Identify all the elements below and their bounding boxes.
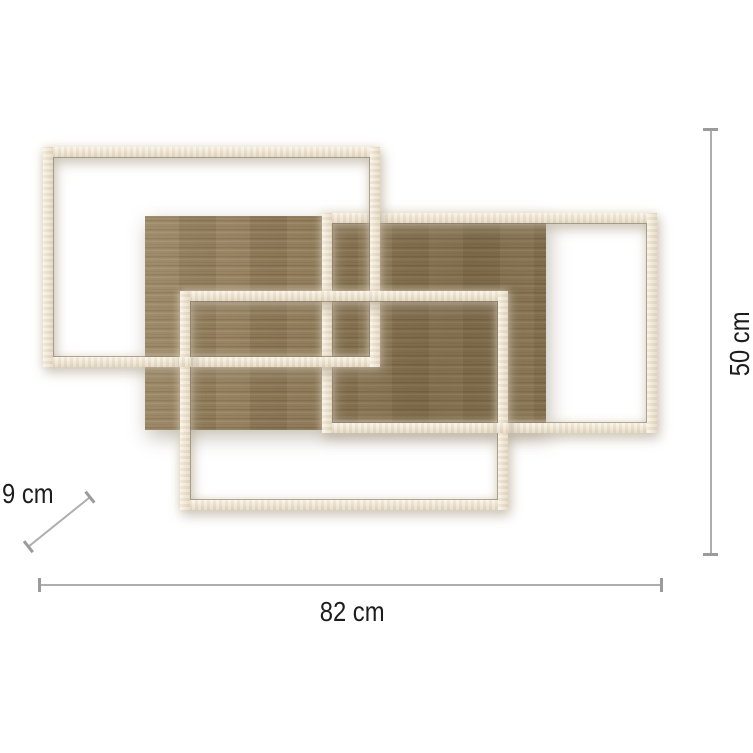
depth-dimension-cap-start: [23, 540, 34, 553]
frame-bar: [498, 291, 508, 510]
depth-dimension-text: 9 cm: [2, 480, 54, 508]
frame-bar: [180, 291, 508, 301]
height-dimension-cap-top: [703, 128, 718, 131]
height-dimension-cap-bottom: [703, 553, 718, 556]
height-dimension-label: 50 cm: [726, 304, 753, 384]
width-dimension-label: 82 cm: [292, 598, 412, 626]
width-dimension-line: [40, 584, 662, 586]
weave-patch: [497, 423, 509, 433]
height-dimension-line: [710, 130, 712, 554]
frame-bar: [180, 291, 190, 510]
led-frame-bottom: [180, 291, 508, 510]
width-dimension-cap-right: [660, 578, 663, 592]
frame-bar: [647, 213, 657, 433]
frame-bar: [43, 147, 53, 367]
frame-bar: [180, 500, 508, 510]
frame-inner-edge: [190, 301, 498, 500]
frame-bar: [43, 147, 380, 157]
weave-patch: [179, 357, 191, 367]
width-dimension-cap-left: [38, 578, 41, 592]
depth-dimension-label: 9 cm: [2, 480, 63, 508]
height-dimension-text: 50 cm: [726, 312, 753, 377]
product-dimension-diagram: 50 cm 82 cm 9 cm: [0, 0, 753, 753]
depth-dimension-cap-end: [84, 491, 95, 504]
width-dimension-text: 82 cm: [320, 598, 385, 626]
